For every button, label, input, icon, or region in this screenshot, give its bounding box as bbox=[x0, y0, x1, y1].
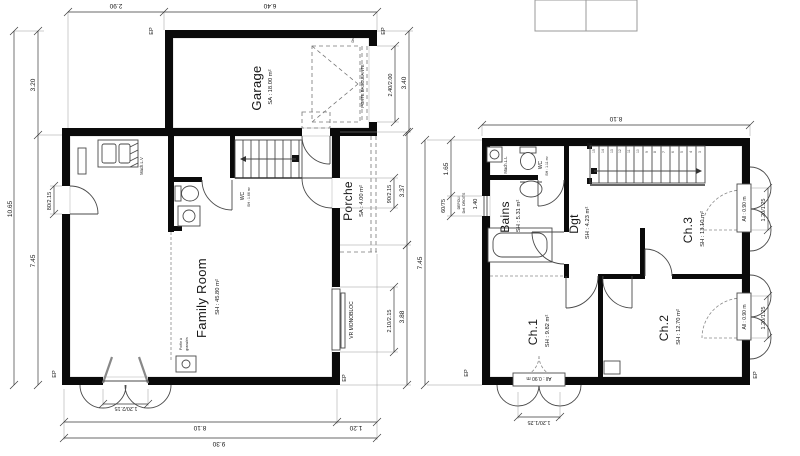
garage-label: Garage bbox=[249, 65, 264, 110]
bains-label: Bains bbox=[498, 201, 512, 233]
ep-marker: EP bbox=[149, 27, 155, 35]
washing-machine-icon bbox=[487, 147, 502, 162]
droits-label: Def. DROITS bbox=[462, 192, 466, 213]
dim-10-65: 10.65 bbox=[7, 200, 14, 217]
toilet-tank-icon bbox=[175, 186, 181, 201]
stair-num: 9 bbox=[645, 151, 649, 153]
wc-label: WC bbox=[240, 191, 246, 200]
porche-area-label: SA : 4.00 m² bbox=[359, 185, 365, 217]
dim-1-20: 1.20 bbox=[349, 424, 362, 431]
dim-8-10-top: 8.10 bbox=[609, 115, 622, 122]
stair-num: 12 bbox=[618, 149, 622, 153]
floorplan-canvas: PORTE BASCULANTE Dsl Mach.L.V WC SH bbox=[0, 0, 800, 456]
ep-marker: EP bbox=[52, 370, 58, 378]
garage-door: PORTE BASCULANTE Dsl bbox=[312, 37, 367, 122]
dim-7-45-right: 7.45 bbox=[417, 256, 424, 269]
kitchen-sink bbox=[78, 140, 138, 174]
dim-3-37: 3.37 bbox=[399, 184, 406, 197]
dgt-area-label: SH : 4.23 m² bbox=[585, 207, 591, 240]
washbasin-icon bbox=[520, 181, 542, 197]
dim-120-125: 1.20/1.25 bbox=[761, 307, 767, 330]
garage-area-label: SA : 18.00 m² bbox=[268, 69, 274, 104]
dim-120-125: 1.20/1.25 bbox=[761, 199, 767, 222]
mach-lv-label: Mach.L.V bbox=[139, 157, 144, 175]
dim-120-125: 1.20/1.25 bbox=[528, 419, 551, 425]
dsl-label: Dsl bbox=[351, 37, 355, 42]
ep-marker: EP bbox=[753, 371, 759, 379]
allege-label: All : 0.90 m bbox=[742, 304, 748, 329]
stair-num: 8 bbox=[653, 151, 657, 153]
dim-80-215: 80/2.15 bbox=[47, 192, 53, 210]
kitchen-door bbox=[70, 186, 98, 214]
entry-door bbox=[302, 178, 332, 208]
wc-door bbox=[202, 180, 232, 210]
ch2-area-label: SH : 12.70 m² bbox=[676, 309, 682, 345]
vr-monobloc-label: VR MONOBLOC bbox=[349, 301, 355, 339]
dim-2-90: 2.90 bbox=[109, 2, 122, 9]
dim-240-200: 2.40/2.00 bbox=[388, 74, 394, 97]
dim-6-40: 6.40 bbox=[263, 2, 276, 9]
ch3-area-label: SH : 13.10 m² bbox=[700, 211, 706, 247]
bains-area-label: SH : 5.31 m² bbox=[516, 200, 522, 233]
window-left-6075 bbox=[484, 196, 487, 216]
mach-ll-label: Mach.L.L bbox=[503, 156, 508, 174]
stair-num: 10 bbox=[636, 149, 640, 153]
poele-label-2: granulés bbox=[185, 337, 189, 351]
stairs-arrow bbox=[696, 168, 702, 174]
family-room-area-label: SH : 45.80 m² bbox=[215, 279, 221, 315]
wc-area-label: SH : 1.66 m² bbox=[247, 186, 251, 206]
wc-label: WC bbox=[538, 160, 544, 169]
stair-num: 7 bbox=[662, 151, 666, 153]
stair-num: 11 bbox=[627, 149, 631, 153]
dim-9-30: 9.30 bbox=[212, 440, 225, 447]
porche-label: Porche bbox=[341, 181, 355, 221]
dim-3-40: 3.40 bbox=[401, 76, 408, 89]
dim-60-75: 60/75 bbox=[441, 199, 447, 213]
ch1-area-label: SH : 9.82 m² bbox=[545, 315, 551, 348]
stair-num: 15 bbox=[592, 149, 596, 153]
allege-label: All : 0.90 m bbox=[526, 375, 551, 381]
dim-3-20: 3.20 bbox=[30, 78, 37, 91]
dim-1-40: 1.40 bbox=[473, 199, 479, 210]
ch2-label: Ch.2 bbox=[657, 315, 671, 342]
right-plan: 15 14 13 12 11 10 9 8 7 6 5 4 3 All : 0.… bbox=[417, 0, 772, 425]
dim-120-215: 1.20/2.15 bbox=[115, 405, 138, 411]
wc-room: WC SH : 1.66 m² bbox=[175, 180, 251, 226]
stair-num: 6 bbox=[671, 151, 675, 153]
ep-marker: EP bbox=[342, 374, 348, 382]
allege-label: All : 0.90 m bbox=[742, 196, 748, 221]
dim-7-45: 7.45 bbox=[30, 254, 37, 267]
ch1-label: Ch.1 bbox=[526, 319, 540, 346]
ch3-label: Ch.3 bbox=[681, 217, 695, 244]
dim-8-10: 8.10 bbox=[193, 424, 206, 431]
stair-num: 14 bbox=[601, 149, 605, 153]
stair-num: 3 bbox=[698, 151, 702, 153]
stairs-upper: 15 14 13 12 11 10 9 8 7 6 5 4 3 bbox=[590, 146, 705, 185]
dim-90-215: 90/2.15 bbox=[387, 185, 393, 203]
garage-house-door bbox=[302, 112, 330, 164]
toilet-icon bbox=[182, 186, 199, 201]
roof-hatch bbox=[535, 0, 637, 31]
dim-210-215: 2.10/2.15 bbox=[387, 310, 393, 333]
toilet-icon bbox=[521, 153, 536, 170]
poele-label-1: Poêle à bbox=[179, 338, 183, 350]
wc-area-label: SH : 1.11 m² bbox=[545, 155, 549, 175]
stair-num: 5 bbox=[680, 151, 684, 153]
washbasin-icon bbox=[178, 206, 200, 226]
dgt-label: Dgt bbox=[567, 214, 581, 234]
depoli-label: DEPOLI bbox=[457, 197, 461, 210]
porte-basculante-label: PORTE BASCULANTE bbox=[360, 64, 365, 108]
dim-1-65: 1.65 bbox=[443, 162, 450, 175]
stair-num: 4 bbox=[689, 151, 693, 153]
left-plan: PORTE BASCULANTE Dsl Mach.L.V WC SH bbox=[7, 2, 413, 447]
stairs-ground bbox=[235, 140, 302, 178]
floorplan-drawing: PORTE BASCULANTE Dsl Mach.L.V WC SH bbox=[0, 0, 800, 456]
pellet-stove: Poêle à granulés bbox=[176, 337, 196, 372]
house-inner-outline bbox=[70, 136, 332, 377]
closet-box bbox=[604, 361, 620, 374]
vr-monobloc-window: VR MONOBLOC bbox=[332, 289, 355, 350]
stair-num: 13 bbox=[610, 149, 614, 153]
dim-3-88: 3.88 bbox=[399, 310, 406, 323]
ep-marker: EP bbox=[464, 369, 470, 377]
family-room-label: Family Room bbox=[194, 258, 209, 338]
